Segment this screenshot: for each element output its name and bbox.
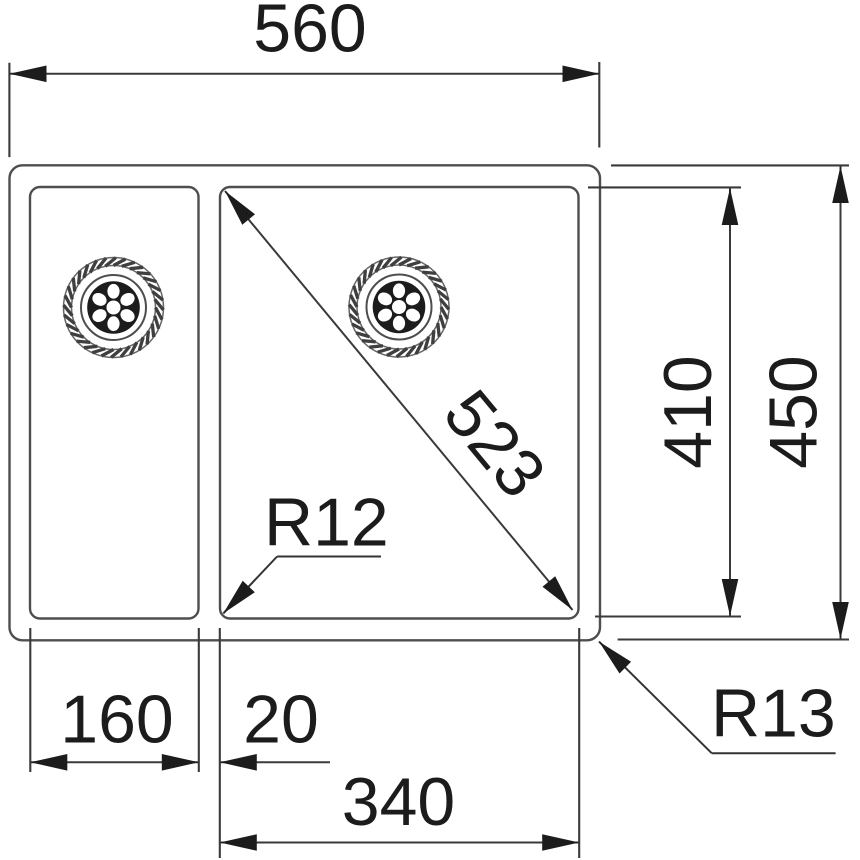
svg-text:R13: R13: [711, 676, 836, 752]
svg-text:410: 410: [650, 355, 726, 468]
svg-text:20: 20: [243, 682, 319, 758]
svg-text:560: 560: [253, 0, 366, 67]
svg-text:450: 450: [756, 355, 832, 468]
svg-text:340: 340: [342, 764, 455, 840]
svg-text:160: 160: [60, 682, 173, 758]
svg-text:R12: R12: [264, 485, 389, 561]
